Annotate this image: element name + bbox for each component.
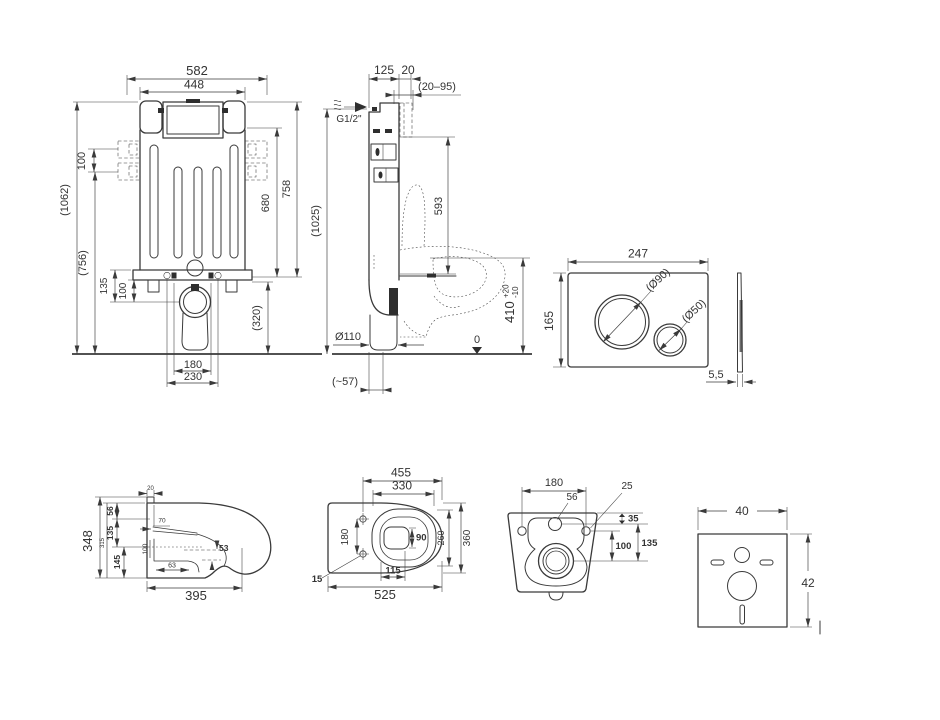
drain-outlet: [180, 287, 211, 318]
water-inlet-hole: [549, 518, 562, 531]
pad-dimensions: 40 42: [698, 504, 820, 634]
pad-hole-big: [728, 572, 757, 601]
cistern-side-dimensions: 125 20 (20–95) (1025) 593 410 +20 -10 Ø1…: [310, 63, 530, 394]
bowl-back-view: 180 56 25 35 100 135: [508, 477, 658, 600]
dim-90-label: 90: [416, 533, 427, 544]
dim-25-label: 25: [621, 481, 633, 492]
dim-247-label: 247: [628, 247, 648, 261]
dim-53-label: 53: [219, 543, 229, 553]
dim-63-label: 63: [168, 563, 176, 570]
dim-582-label: 582: [186, 63, 208, 78]
dim-1025-label: (1025): [310, 205, 322, 237]
dim-70-label: 70: [158, 518, 166, 525]
dim-56-label: 56: [105, 506, 115, 516]
dim-d110-label: Ø110: [335, 331, 361, 343]
dim-42-label: 42: [801, 576, 815, 590]
dim-525-label: 525: [374, 587, 396, 602]
dim-115-label: 115: [385, 566, 401, 577]
insulation-pad-view: 40 42: [698, 504, 820, 634]
toilet-installation-drawing: 582 448 (1062) 100 (756) 758 680 (320) 1…: [0, 0, 940, 720]
cistern-front-view: 582 448 (1062) 100 (756) 758 680 (320) 1…: [59, 63, 322, 387]
pad-hole-small: [735, 548, 750, 563]
dim-448-label: 448: [184, 78, 204, 92]
dim-100-label-bside: 100: [142, 543, 149, 554]
cistern-side-view: G1/2" 125 20 (20–95) (1025) 593: [310, 63, 532, 394]
dim-180-label-btop: 180: [340, 528, 351, 545]
cistern-side-outline: [369, 103, 456, 350]
fixing-hole-right: [582, 527, 590, 535]
dim-20-label-bside: 20: [147, 486, 154, 492]
dim-125-label: 125: [374, 63, 394, 77]
pad-slot-left: [711, 560, 724, 565]
dim-145-label: 145: [112, 555, 122, 569]
supply-arrow-icon: [355, 102, 367, 112]
dim-410-tol-minus: -10: [511, 286, 520, 298]
dim-395-label: 395: [185, 588, 207, 603]
dim-56-label-bback: 56: [566, 492, 578, 503]
fixing-hole-left: [518, 527, 526, 535]
dim-230-label: 230: [184, 371, 202, 383]
bowl-side-view: 348 315 56 135 145 20 70 100 53 63 395: [80, 486, 271, 603]
outlet-hole: [539, 544, 574, 579]
dim-455-label: 455: [391, 466, 411, 480]
dim-1062-label: (1062): [59, 184, 71, 216]
dim-330-label: 330: [392, 479, 412, 493]
dim-593-label: 593: [433, 197, 445, 215]
dim-135-label: 135: [99, 277, 110, 294]
dim-260-label: 260: [436, 530, 446, 545]
pad-slot-right: [760, 560, 773, 565]
cistern-front-outline: [133, 99, 252, 350]
dim-165-label: 165: [542, 311, 556, 331]
dim-410-group: 410 +20 -10: [502, 284, 521, 323]
dim-180-label: 180: [184, 359, 202, 371]
flush-plate-view: 247 165 (Ø90) (Ø50) 5,5: [542, 247, 756, 388]
dim-410-label: 410: [502, 301, 517, 323]
dim-680-label: 680: [260, 194, 272, 212]
dim-320-label: (320): [251, 305, 263, 331]
dim-360-label: 360: [462, 529, 473, 546]
dim-20-label: 20: [401, 63, 415, 77]
dim-15-label: 15: [312, 574, 323, 585]
dim-d90-label: (Ø90): [644, 266, 673, 294]
dim-180-label-bback: 180: [545, 477, 563, 489]
dim-57-label: (~57): [332, 376, 358, 388]
drain-pipe: [370, 315, 397, 350]
base-plate: [133, 270, 252, 280]
wall-rail-dashed: [400, 103, 412, 137]
dim-100-label-bback: 100: [616, 541, 632, 552]
dim-55-label: 5,5: [708, 369, 723, 381]
dim-d50-label: (Ø50): [680, 297, 709, 325]
dim-40-label: 40: [735, 504, 749, 518]
bowl-top-dimensions: 455 330 525 180 360 260 115 90 15: [312, 466, 473, 603]
bowl-side-outline: [147, 497, 271, 578]
thread-size-label: G1/2": [336, 114, 362, 125]
dim-100-label: 100: [76, 152, 88, 170]
access-window: [163, 102, 223, 138]
dim-135-label: 135: [105, 526, 115, 540]
dim-35-label: 35: [628, 514, 639, 525]
dim-20-95-label: (20–95): [418, 81, 456, 93]
dim-756-label: (756): [77, 250, 89, 276]
water-supply-symbol: G1/2": [334, 100, 367, 125]
floor-zero-label: 0: [474, 334, 480, 346]
dim-135-label-bback: 135: [642, 538, 659, 549]
bowl-top-view: 455 330 525 180 360 260 115 90 15: [312, 466, 473, 603]
cistern-front-dimensions: 582 448 (1062) 100 (756) 758 680 (320) 1…: [59, 63, 302, 387]
technical-drawing-page: 582 448 (1062) 100 (756) 758 680 (320) 1…: [0, 0, 940, 720]
dim-100b-label: 100: [118, 282, 129, 299]
pad-slot-bottom: [740, 605, 745, 624]
floor-level-icon: [472, 347, 482, 354]
dim-410-tol-plus: +20: [502, 284, 511, 298]
dim-348-label: 348: [80, 530, 95, 552]
bowl-back-outline: [508, 513, 597, 600]
bowl-silhouette-dashed: [400, 185, 505, 337]
flush-plate-profile: 5,5: [706, 273, 756, 387]
dim-758-label: 758: [281, 180, 293, 198]
bowl-back-dimensions: 180 56 25 35 100 135: [522, 477, 658, 561]
flush-inlet-hole: [384, 527, 409, 549]
